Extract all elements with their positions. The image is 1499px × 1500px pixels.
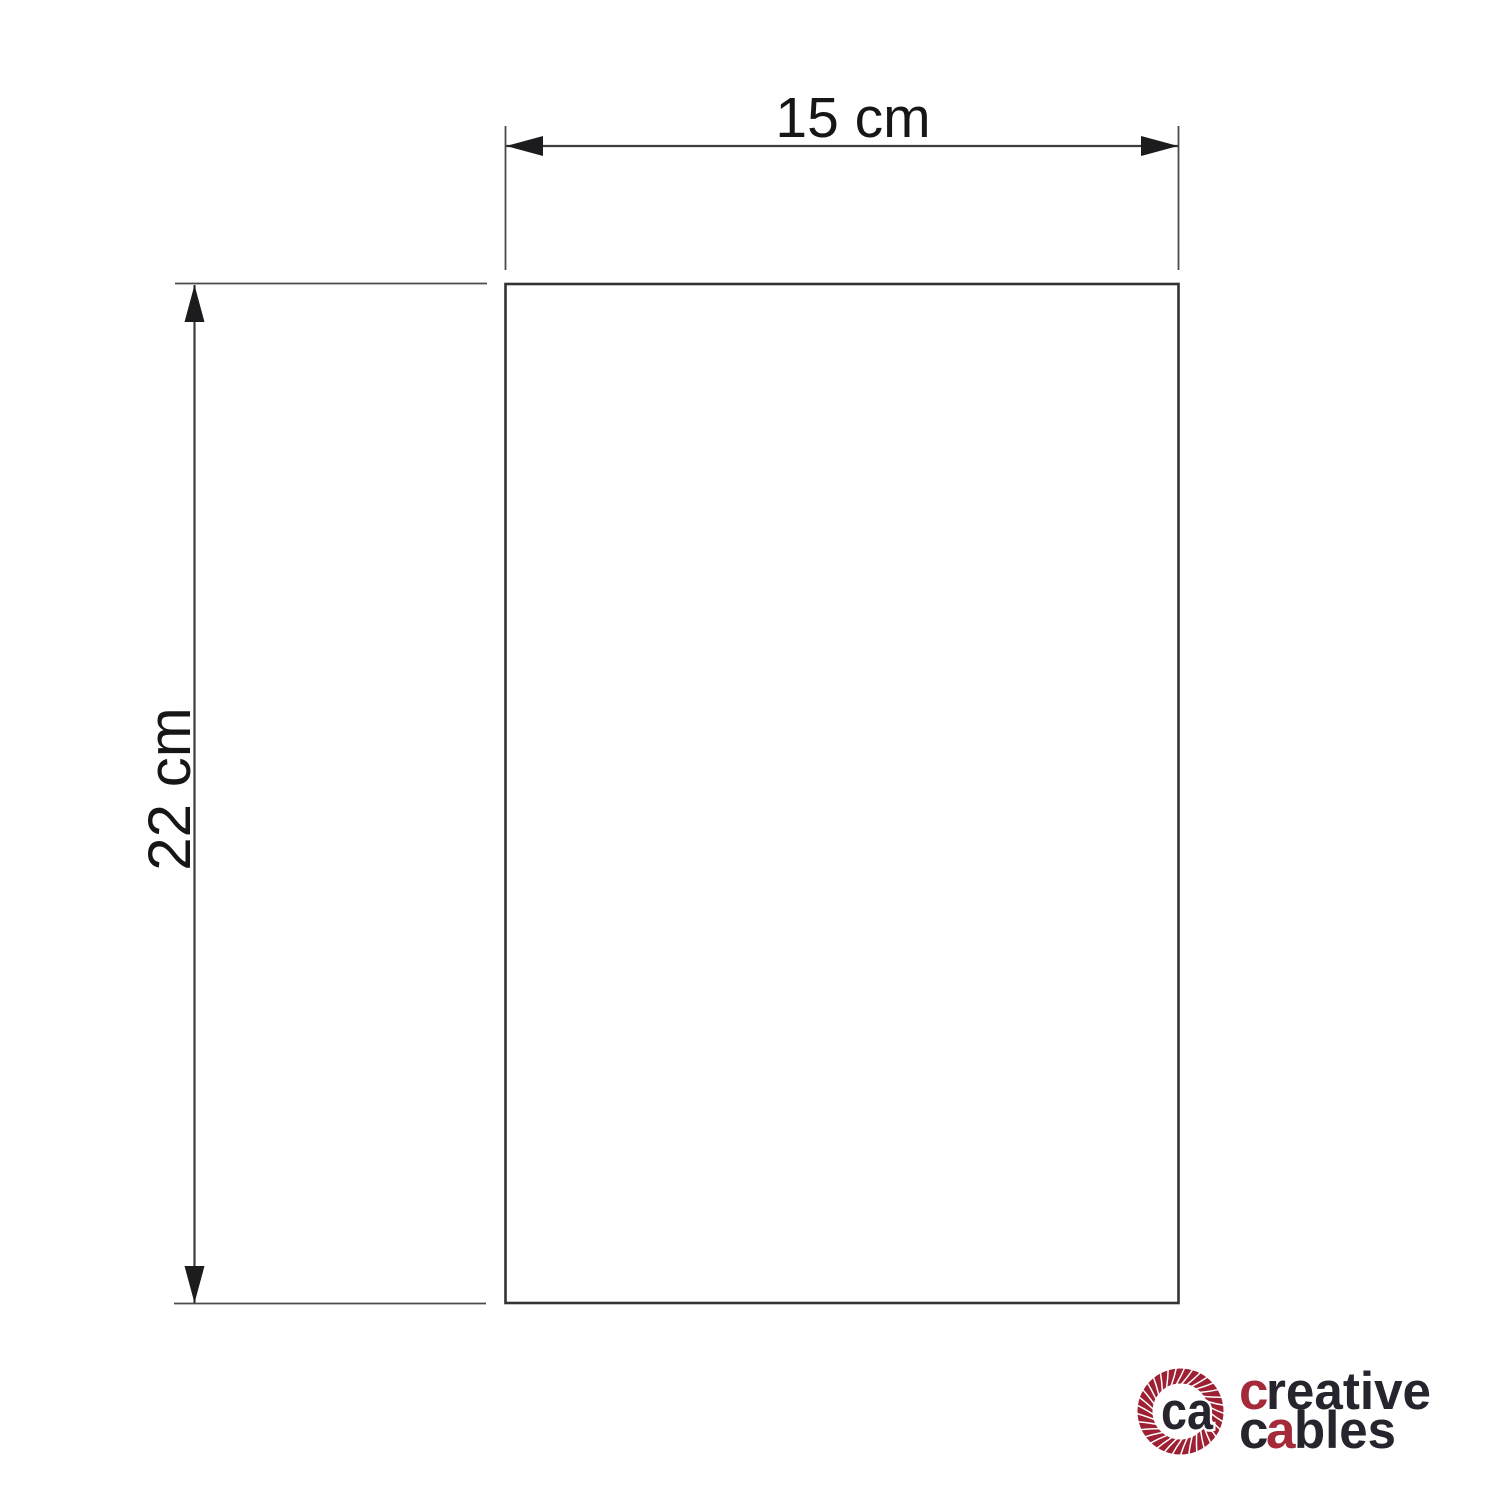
svg-text:bles: bles [1294, 1401, 1396, 1460]
svg-text:15 cm: 15 cm [775, 86, 930, 150]
svg-text:22 cm: 22 cm [136, 707, 203, 870]
svg-text:ca: ca [1161, 1382, 1213, 1441]
svg-text:c: c [1239, 1401, 1268, 1460]
svg-text:a: a [1266, 1401, 1296, 1460]
